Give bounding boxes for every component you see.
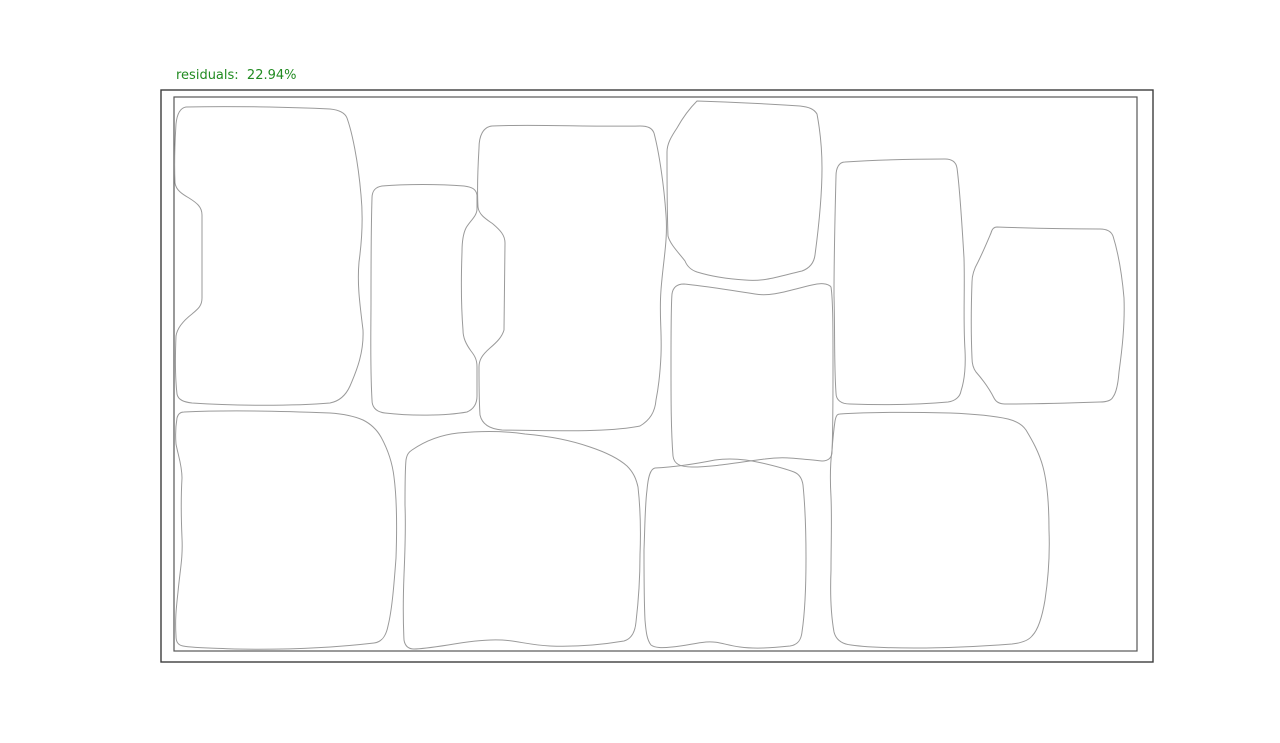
stone-far-right — [971, 227, 1124, 404]
outer-frame — [161, 90, 1153, 662]
stone-center — [671, 284, 833, 467]
stone-top-middle — [667, 101, 822, 280]
figure-canvas: residuals: 22.94% — [0, 0, 1280, 743]
inner-frame — [174, 97, 1137, 651]
stone-bottom-left — [176, 411, 397, 649]
stone-bottom-right — [830, 412, 1049, 648]
nesting-figure — [0, 0, 1280, 743]
stone-bottom-center — [644, 459, 806, 648]
stone-bottom-center-left — [403, 432, 640, 649]
stone-top-narrow — [371, 185, 477, 416]
stone-top-left — [175, 107, 364, 406]
stone-tall-right — [834, 159, 965, 405]
stone-top-center-large — [478, 125, 667, 430]
